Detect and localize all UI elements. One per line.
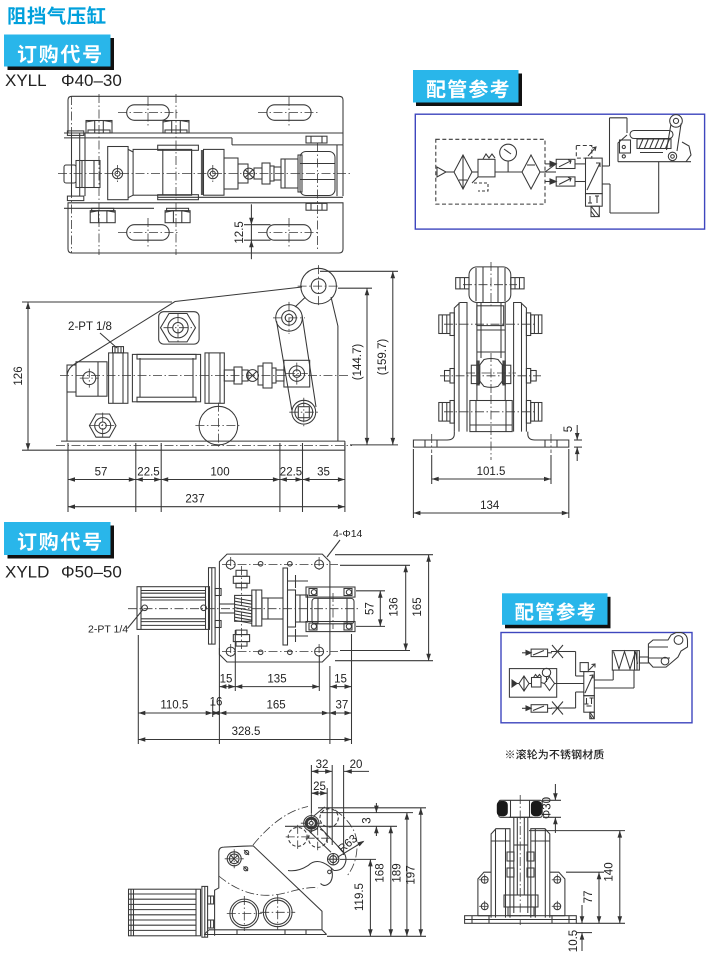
svg-text:Φ50–50: Φ50–50 (61, 563, 122, 582)
svg-text:32: 32 (316, 759, 329, 771)
svg-text:197: 197 (405, 865, 417, 884)
svg-text:135: 135 (267, 674, 286, 686)
svg-text:16: 16 (210, 697, 223, 709)
svg-text:165: 165 (267, 700, 286, 712)
svg-text:237: 237 (185, 494, 204, 506)
svg-text:22.5: 22.5 (280, 467, 302, 479)
svg-text:119.5: 119.5 (354, 883, 366, 911)
svg-text:2-PT 1/4: 2-PT 1/4 (88, 624, 128, 636)
svg-text:4-Φ14: 4-Φ14 (333, 528, 363, 540)
svg-text:15: 15 (220, 674, 233, 686)
svg-text:12.5: 12.5 (234, 221, 246, 243)
svg-text:15: 15 (334, 674, 347, 686)
svg-text:25: 25 (313, 781, 326, 793)
svg-text:189: 189 (391, 863, 403, 882)
svg-text:168: 168 (375, 863, 387, 882)
svg-text:136: 136 (389, 597, 401, 616)
svg-text:22.5: 22.5 (137, 467, 159, 479)
svg-text:2-PT 1/8: 2-PT 1/8 (68, 321, 112, 333)
svg-text:35: 35 (317, 467, 330, 479)
svg-text:134: 134 (480, 500, 500, 512)
svg-text:Φ40–30: Φ40–30 (61, 71, 122, 90)
svg-text:5: 5 (563, 426, 575, 432)
svg-text:20: 20 (350, 759, 363, 771)
svg-text:110.5: 110.5 (160, 700, 188, 712)
svg-text:10.5: 10.5 (568, 930, 580, 952)
svg-text:3: 3 (362, 817, 374, 823)
svg-text:(159.7): (159.7) (377, 339, 389, 376)
svg-text:126: 126 (13, 366, 25, 385)
svg-text:101.5: 101.5 (477, 466, 506, 478)
svg-text:XYLD: XYLD (5, 563, 49, 582)
svg-text:37: 37 (336, 700, 349, 712)
svg-text:57: 57 (95, 467, 108, 479)
svg-text:(144.7): (144.7) (352, 344, 364, 381)
svg-text:328.5: 328.5 (232, 726, 261, 738)
svg-text:165: 165 (412, 597, 424, 616)
svg-text:XYLL: XYLL (5, 71, 47, 90)
svg-text:100: 100 (210, 467, 229, 479)
svg-text:57: 57 (365, 602, 377, 615)
svg-text:77: 77 (583, 891, 595, 904)
svg-text:140: 140 (604, 862, 616, 881)
